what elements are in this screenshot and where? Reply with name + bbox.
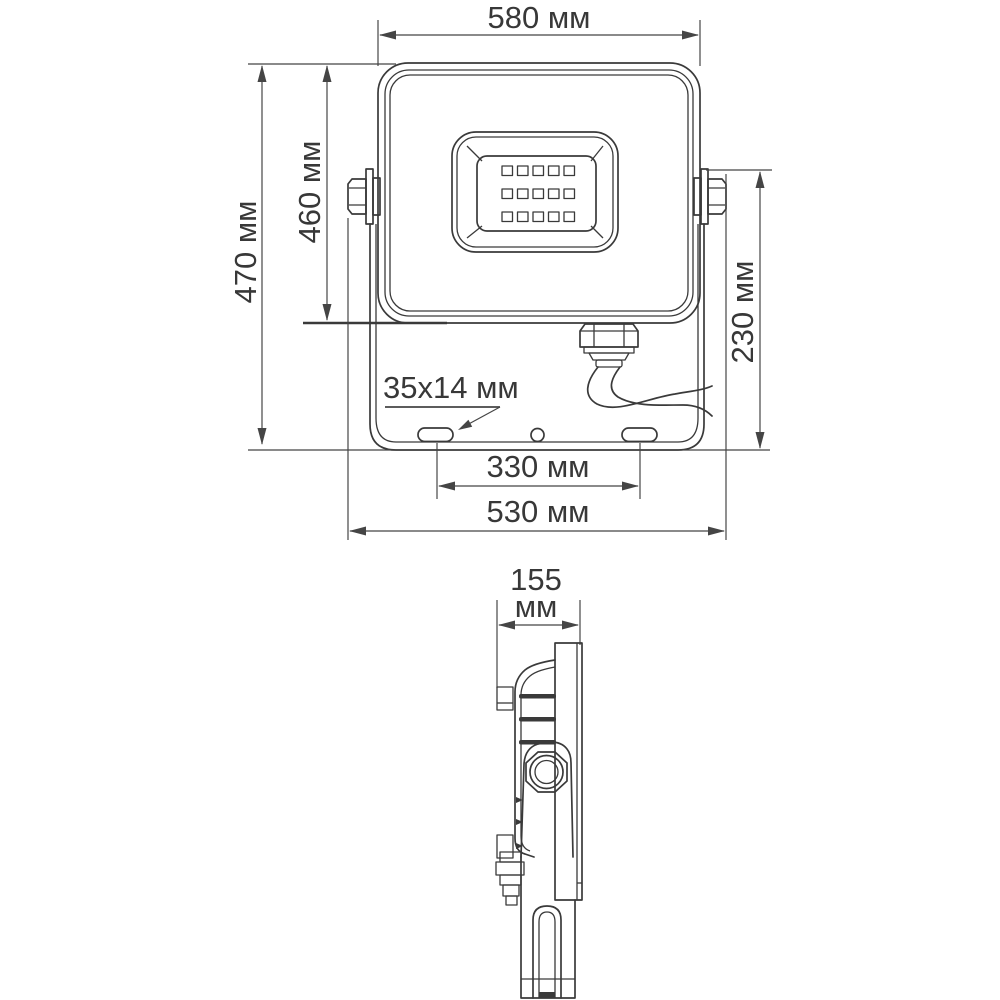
gland-flange bbox=[584, 347, 634, 353]
gland-step bbox=[500, 852, 521, 862]
arrowhead bbox=[682, 31, 699, 40]
reflector-edge-bl bbox=[467, 226, 482, 238]
gland-step bbox=[496, 862, 524, 875]
reflector-edge-br bbox=[591, 226, 603, 238]
cable-gland bbox=[580, 324, 638, 367]
arrowhead bbox=[323, 304, 332, 321]
dim-label-slot-spacing: 330 мм bbox=[487, 449, 590, 484]
side-tab-upper bbox=[497, 687, 513, 710]
led-chip bbox=[518, 189, 529, 199]
led-grid bbox=[502, 166, 575, 222]
front-view: 580 мм 470 мм 460 мм 230 мм 35x14 мм bbox=[228, 0, 772, 540]
led-chip bbox=[502, 212, 513, 222]
gland-taper bbox=[589, 353, 629, 360]
led-chip bbox=[533, 166, 544, 176]
cable-edge bbox=[588, 367, 712, 407]
gland-step bbox=[506, 896, 517, 905]
mounting-ear-right bbox=[694, 169, 726, 224]
body-mid-contour bbox=[385, 70, 693, 316]
arrowhead bbox=[258, 65, 267, 82]
ear-plate bbox=[701, 169, 708, 224]
dim-label-depth-unit: мм bbox=[515, 589, 558, 624]
arrowhead bbox=[622, 482, 639, 491]
arrowhead bbox=[379, 31, 396, 40]
slot-callout: 35x14 мм bbox=[383, 370, 519, 430]
mounting-slot-left bbox=[418, 428, 453, 442]
fin bbox=[519, 717, 556, 722]
side-bracket-foot bbox=[521, 857, 575, 998]
led-chip bbox=[502, 189, 513, 199]
gland-tube bbox=[596, 360, 622, 367]
dim-label-width-bottom: 530 мм bbox=[487, 494, 590, 529]
slot-size-label: 35x14 мм bbox=[383, 370, 519, 405]
pivot-octagon bbox=[526, 752, 567, 792]
dimension-530: 530 мм bbox=[348, 174, 726, 540]
pivot-knob bbox=[526, 752, 567, 792]
gland-nut bbox=[580, 324, 638, 347]
arrowhead bbox=[349, 527, 366, 536]
arrowhead bbox=[708, 527, 725, 536]
mounting-slot-right bbox=[622, 428, 657, 442]
cable-edge bbox=[611, 367, 712, 416]
arrowhead bbox=[458, 420, 472, 430]
dimension-155: 155 мм bbox=[497, 562, 580, 688]
led-chip bbox=[533, 189, 544, 199]
slab-outline bbox=[555, 643, 582, 900]
floodlight-body bbox=[378, 63, 700, 323]
arrowhead bbox=[562, 621, 579, 630]
arrowhead bbox=[438, 482, 455, 491]
led-chip bbox=[564, 166, 575, 176]
leader-line bbox=[465, 407, 500, 426]
arm-outline bbox=[521, 742, 573, 857]
bolt-head-icon bbox=[348, 179, 366, 214]
side-cable-gland bbox=[496, 852, 524, 905]
gland-step bbox=[500, 875, 521, 885]
arrowhead bbox=[756, 171, 765, 188]
foot-outline bbox=[521, 857, 575, 998]
led-panel bbox=[477, 156, 596, 231]
dimension-230: 230 мм bbox=[706, 170, 772, 449]
reflector-edge-tr bbox=[591, 146, 603, 161]
arrowhead bbox=[498, 621, 515, 630]
dim-label-height-body: 460 мм bbox=[292, 141, 327, 244]
dimension-580: 580 мм bbox=[378, 0, 700, 66]
led-chip bbox=[502, 166, 513, 176]
foot-slot-outer bbox=[533, 906, 561, 998]
bolt-head-icon bbox=[708, 179, 726, 214]
arrowhead bbox=[756, 432, 765, 449]
dim-label-width-top: 580 мм bbox=[488, 0, 591, 35]
ear-plate bbox=[373, 178, 380, 215]
power-cable bbox=[588, 367, 712, 416]
body-outer-contour bbox=[378, 63, 700, 323]
dimension-330: 330 мм bbox=[437, 443, 640, 499]
led-chip bbox=[533, 212, 544, 222]
dim-label-height-overall: 470 мм bbox=[228, 201, 263, 304]
led-module bbox=[452, 132, 618, 252]
led-chip bbox=[518, 212, 529, 222]
arrowhead bbox=[323, 65, 332, 82]
body-inner-contour bbox=[390, 75, 688, 311]
center-hole bbox=[531, 429, 544, 442]
floodlight-drawing: 580 мм 470 мм 460 мм 230 мм 35x14 мм bbox=[0, 0, 1000, 1000]
reflector-edge-tl bbox=[467, 146, 482, 161]
foot-slot-inner bbox=[539, 912, 555, 998]
side-housing bbox=[497, 660, 556, 858]
led-chip bbox=[564, 189, 575, 199]
fin bbox=[519, 694, 556, 699]
gland-step bbox=[503, 885, 519, 896]
bracket-inner-contour bbox=[376, 224, 698, 442]
side-front-slab bbox=[555, 643, 582, 900]
bracket-outer-contour bbox=[370, 224, 704, 450]
led-chip bbox=[549, 166, 560, 176]
foot-slot-shadow bbox=[539, 992, 555, 998]
led-chip bbox=[518, 166, 529, 176]
side-view: 155 мм bbox=[496, 562, 582, 998]
mounting-ear-left bbox=[348, 169, 380, 224]
led-chip bbox=[564, 212, 575, 222]
arrowhead bbox=[258, 428, 267, 445]
dim-label-bracket-height: 230 мм bbox=[725, 261, 760, 364]
side-bracket-arm bbox=[521, 742, 573, 857]
led-chip bbox=[549, 212, 560, 222]
led-chip bbox=[549, 189, 560, 199]
drawing-canvas: 580 мм 470 мм 460 мм 230 мм 35x14 мм bbox=[0, 0, 1000, 1000]
ear-plate bbox=[366, 169, 373, 224]
